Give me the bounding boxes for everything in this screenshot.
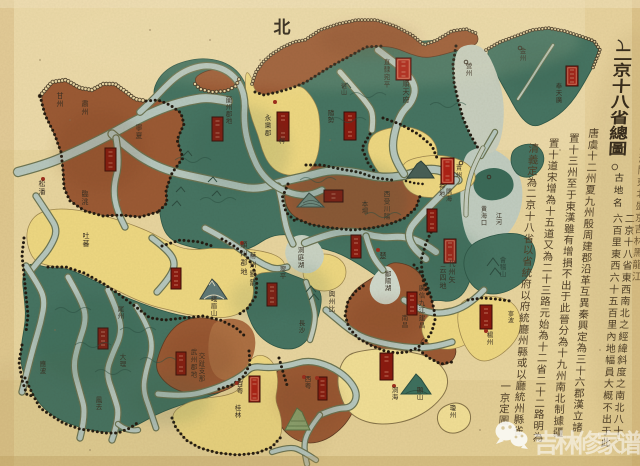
svg-text:谱: 谱 [617, 429, 640, 458]
